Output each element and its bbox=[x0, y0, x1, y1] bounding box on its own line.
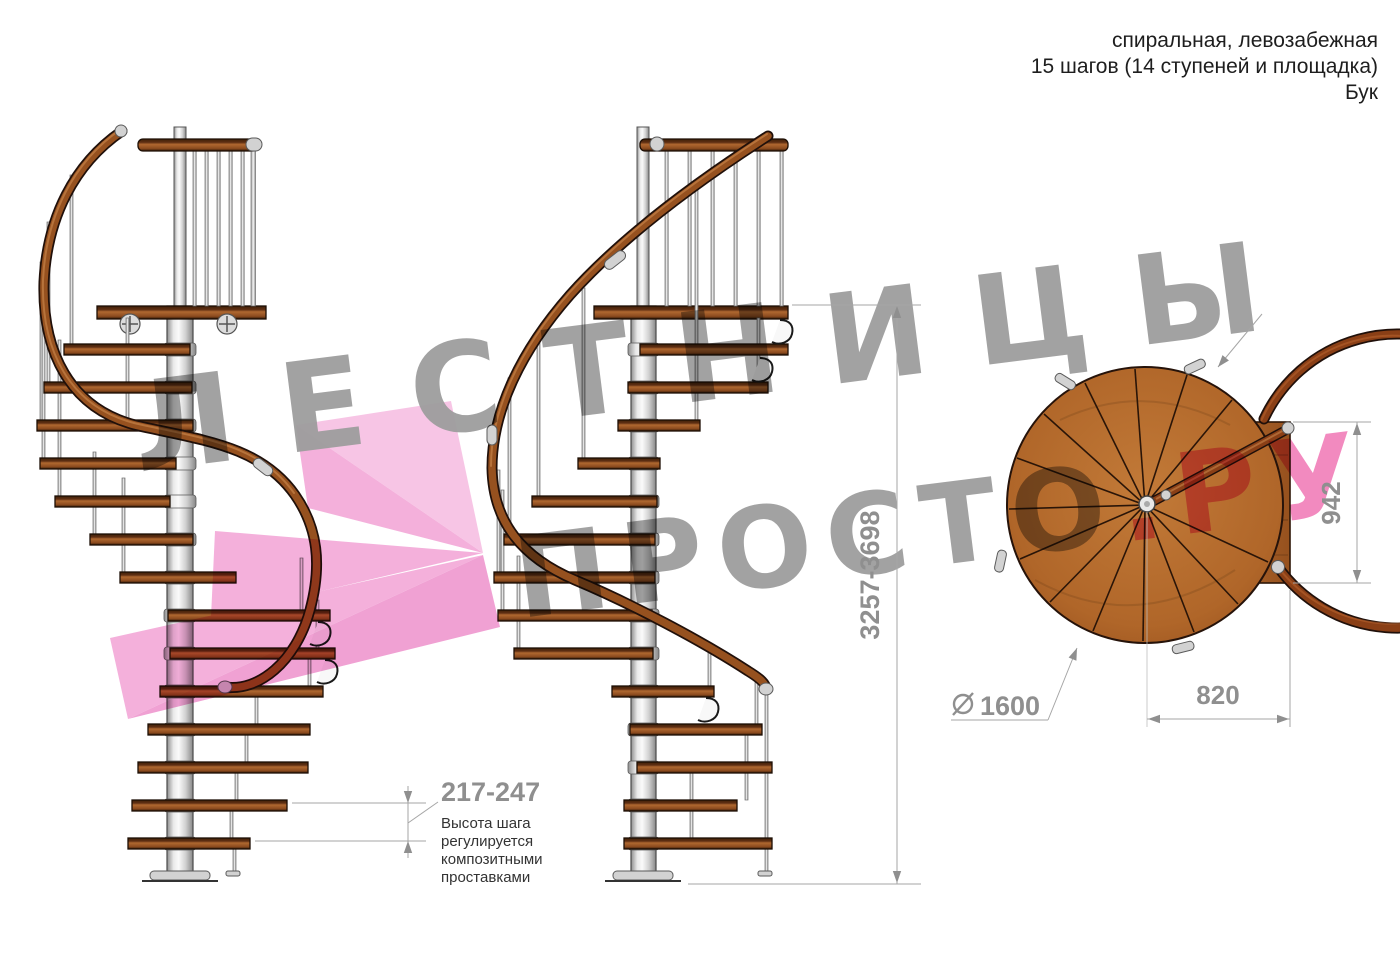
step-height-value: 217-247 bbox=[441, 777, 540, 807]
staircase-drawing: ЛЕСТНИЦЫ ПРОСТО.РУ 217-247 Высота шага р… bbox=[0, 0, 1400, 953]
pole-base bbox=[142, 871, 218, 881]
diameter-value: 1600 bbox=[980, 691, 1040, 721]
total-height-value: 3257-3698 bbox=[855, 510, 885, 639]
drawing-canvas: ЛЕСТНИЦЫ ПРОСТО.РУ 217-247 Высота шага р… bbox=[0, 0, 1400, 953]
pole-base bbox=[605, 871, 681, 881]
side-view-left bbox=[37, 125, 338, 881]
title-line-3: Бук bbox=[1031, 80, 1378, 106]
watermark-line2-gray: ПРОСТО bbox=[507, 440, 1127, 645]
mount-plate-icon bbox=[217, 314, 237, 334]
dimension-step-height: 217-247 Высота шага регулируется компози… bbox=[255, 777, 543, 886]
bracket-hook-icon bbox=[698, 698, 719, 722]
title-line-2: 15 шагов (14 ступеней и площадка) bbox=[1031, 54, 1378, 80]
step-height-note-3: композитными bbox=[441, 851, 543, 868]
dimension-diameter: 1600 bbox=[951, 646, 1081, 721]
title-block: спиральная, левозабежная 15 шагов (14 ст… bbox=[1031, 28, 1378, 106]
mount-plate-icon bbox=[120, 314, 140, 334]
handrail-bar bbox=[138, 139, 258, 151]
pole-top bbox=[174, 127, 186, 307]
landing-width-value: 820 bbox=[1196, 680, 1239, 710]
step-height-note-1: Высота шага bbox=[441, 815, 531, 832]
step-height-note-4: проставками bbox=[441, 869, 530, 886]
step-height-note-2: регулируется bbox=[441, 833, 533, 850]
diameter-icon bbox=[953, 693, 973, 715]
title-line-1: спиральная, левозабежная bbox=[1031, 28, 1378, 54]
landing-side-value: 942 bbox=[1316, 481, 1346, 524]
